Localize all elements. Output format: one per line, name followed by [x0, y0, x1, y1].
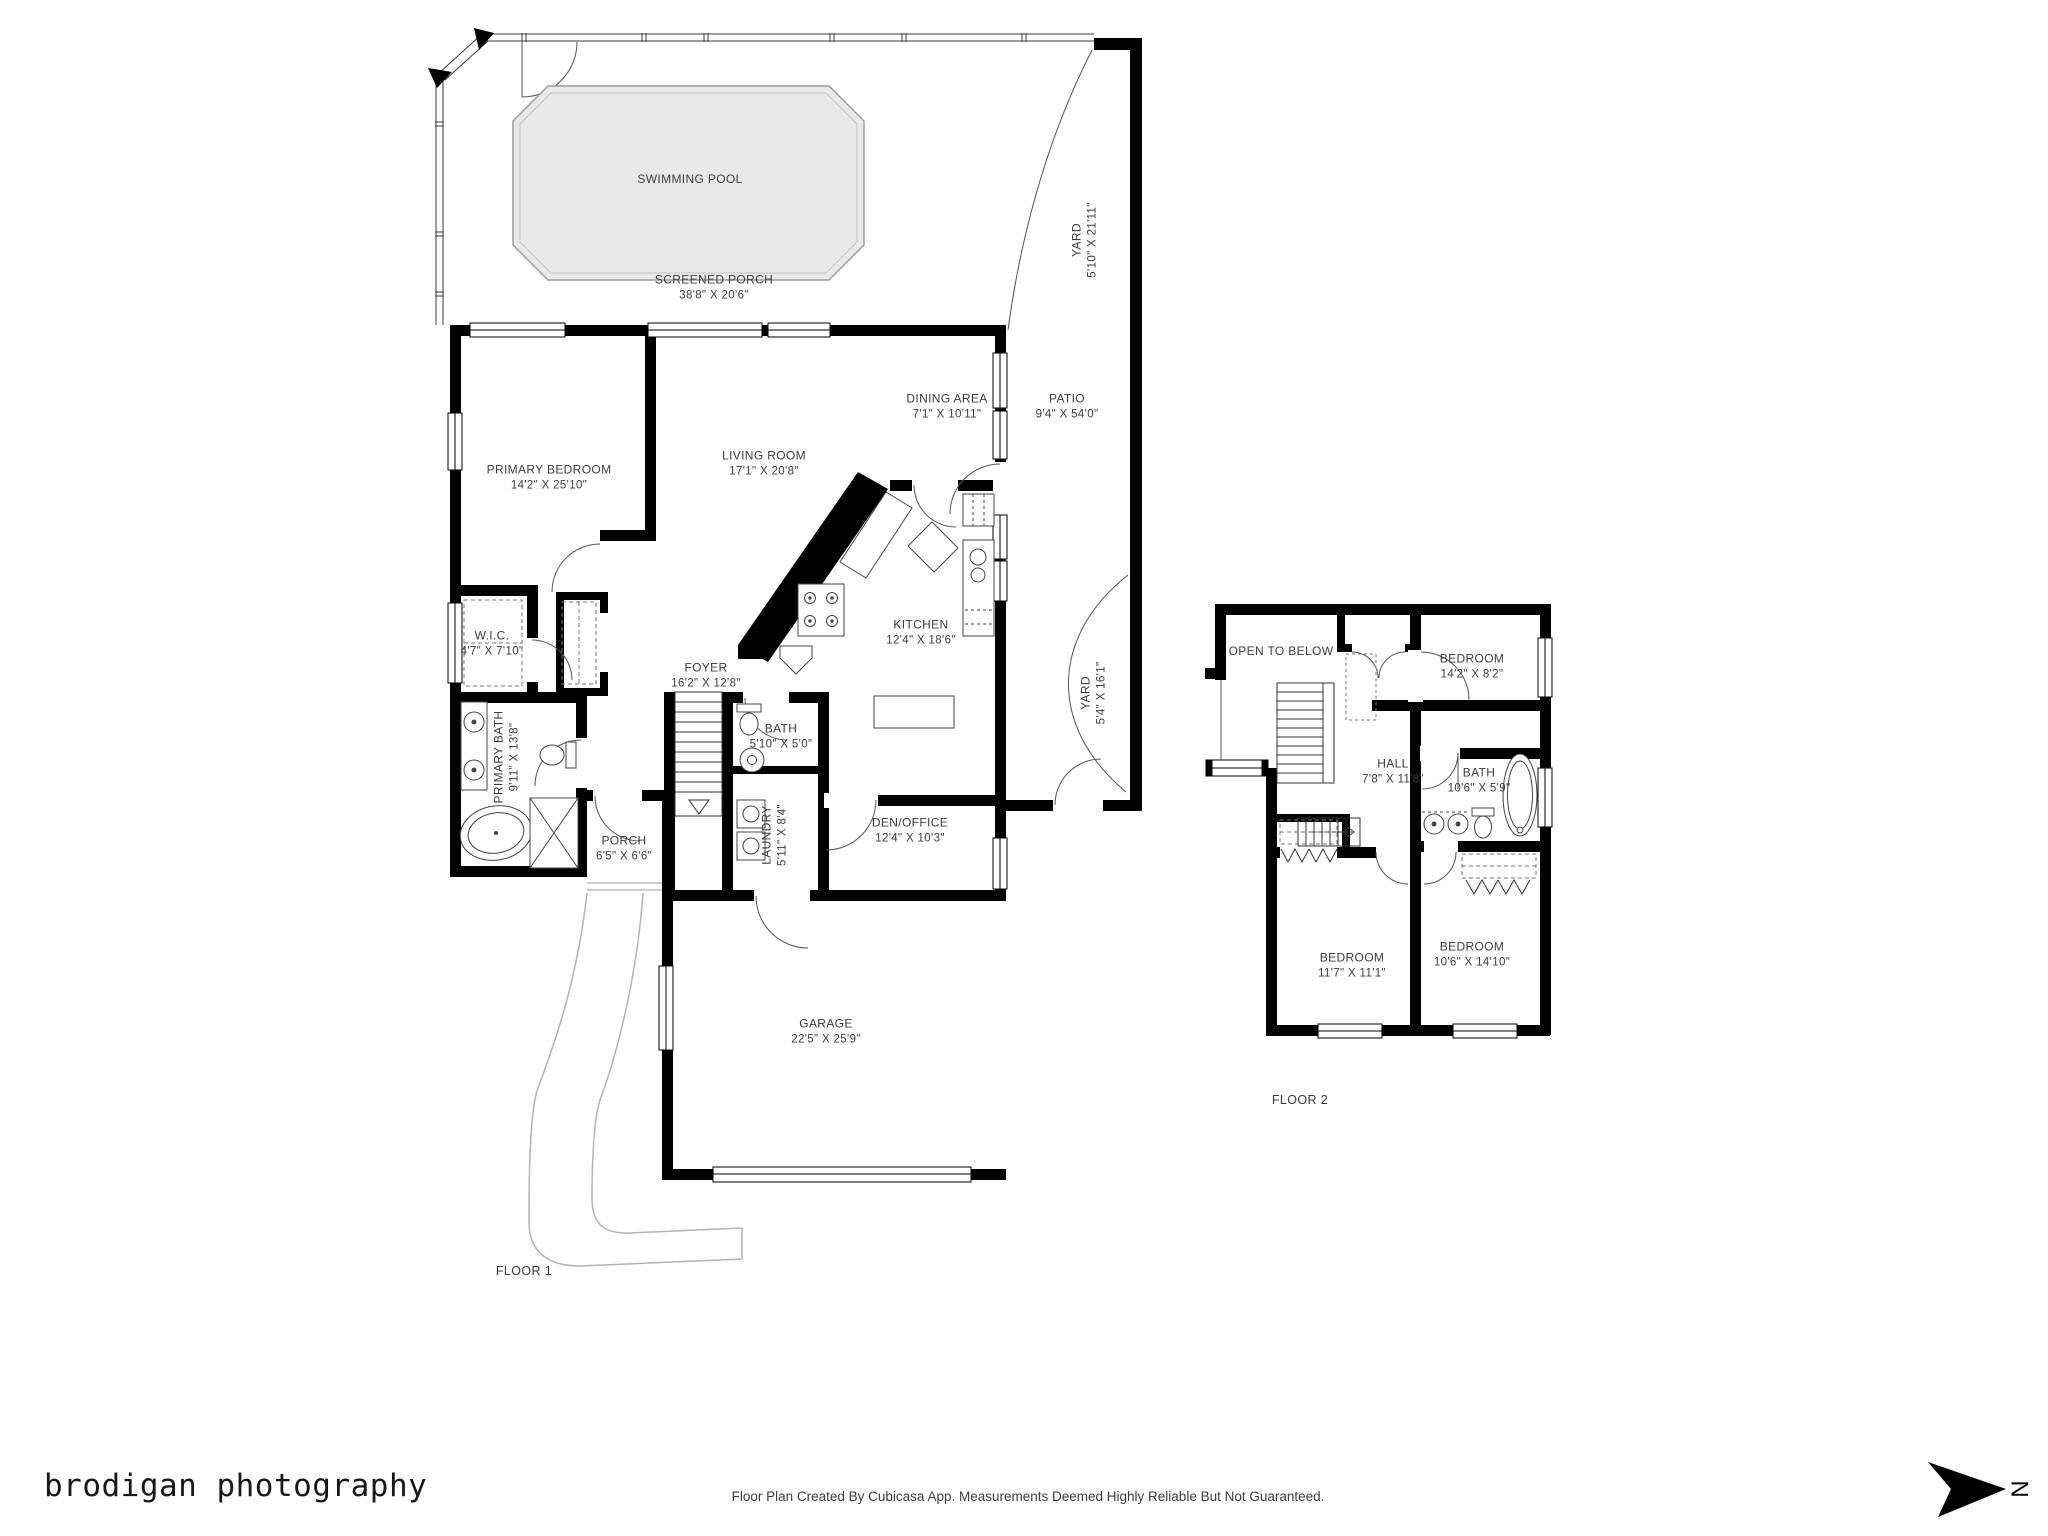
north-label: N [2006, 1480, 2033, 1497]
disclaimer-text: Floor Plan Created By Cubicasa App. Meas… [732, 1489, 1325, 1504]
room-label-swimming-pool: SWIMMING POOL [637, 172, 742, 188]
porch-steps [587, 883, 662, 890]
room-label-garage: GARAGE22'5" X 25'9" [791, 1017, 861, 1048]
screened-porch-corner-posts [428, 28, 494, 88]
room-label-bedroom-right: BEDROOM10'6" X 14'10" [1434, 940, 1510, 971]
room-label-dining-area: DINING AREA7'1" X 10'11" [906, 392, 987, 423]
room-label-open-to-below: OPEN TO BELOW [1229, 644, 1334, 660]
room-label-kitchen: KITCHEN12'4" X 18'6" [886, 618, 956, 649]
floor1-stairs [675, 692, 722, 816]
room-label-porch: PORCH6'5" X 6'6" [596, 834, 652, 865]
room-label-laundry: LAUNDRY5'11" X 8'4" [760, 804, 791, 866]
room-label-primary-bath: PRIMARY BATH9'11" X 13'8" [492, 711, 523, 804]
room-label-foyer: FOYER16'2" X 12'8" [671, 661, 741, 692]
room-label-patio: PATIO9'4" X 54'0" [1036, 392, 1099, 423]
room-label-yard-lower: YARD5'4" X 16'1" [1079, 662, 1110, 725]
room-label-bedroom-left: BEDROOM11'7" X 11'1" [1318, 951, 1386, 982]
floor-plan-drawing: N [0, 0, 2048, 1536]
room-label-wic: W.I.C.4'7" X 7'10" [461, 629, 524, 660]
room-label-primary-bedroom: PRIMARY BEDROOM14'2" X 25'10" [487, 463, 612, 494]
room-label-bath-1: BATH5'10" X 5'0" [750, 722, 813, 753]
room-label-screened-porch: SCREENED PORCH38'8" X 20'6" [655, 273, 773, 304]
room-label-living-room: LIVING ROOM17'1" X 20'8" [722, 449, 806, 480]
driveway-path [529, 893, 742, 1266]
room-label-den-office: DEN/OFFICE12'4" X 10'3" [872, 816, 948, 847]
north-arrow-icon: N [1928, 1462, 2033, 1517]
room-label-yard-upper: YARD5'10" X 21'11" [1070, 202, 1101, 277]
floor2-label: FLOOR 2 [1272, 1093, 1328, 1107]
floor1-label: FLOOR 1 [496, 1264, 552, 1278]
room-label-hall: HALL7'8" X 11'8" [1362, 757, 1424, 788]
room-label-bedroom-top: BEDROOM14'2" X 8'2" [1440, 652, 1504, 683]
patio-wall [1006, 38, 1142, 811]
floor-plan-page: N SWIMMING POOL SCREENED PORCH38'8" X 20… [0, 0, 2048, 1536]
photography-studio-logo: brodigan photography [44, 1468, 427, 1504]
room-label-bath-2: BATH10'6" X 5'9" [1448, 766, 1511, 797]
